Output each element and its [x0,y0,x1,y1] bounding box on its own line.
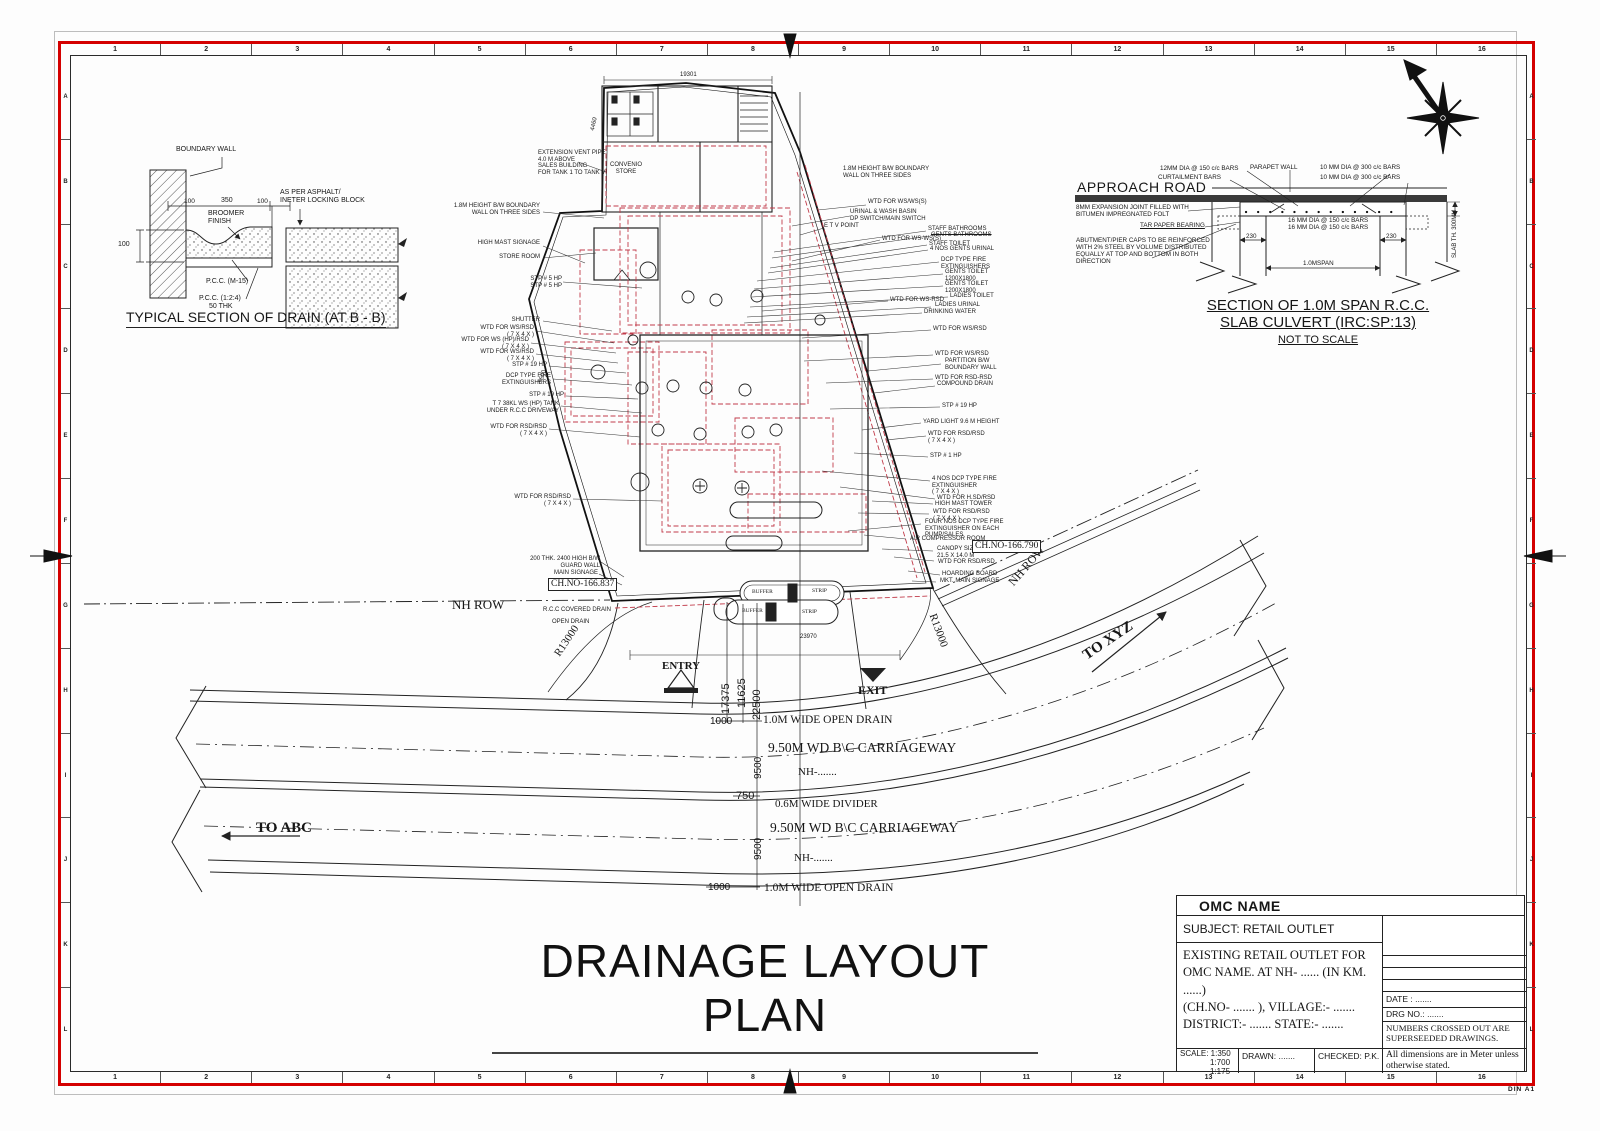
dimension-text: 9500 [753,757,764,779]
road-label: STRIP [812,588,827,594]
plan-callout-label: WTD FOR WS/RSD [933,326,987,333]
company-name: OMC NAME [1177,896,1524,916]
detail-label: 350 [221,197,233,205]
drg-no-cell: DRG NO.: ....... [1383,1008,1526,1022]
detail-label: 8MM EXPANSION JOINT FILLED WITH BITUMEN … [1076,204,1189,218]
plan-callout-label: 200 THK. 2400 HIGH B/W GUARD WALL [530,556,600,569]
plan-callout-label: 1.8M HEIGHT B/W BOUNDARY WALL ON THREE S… [843,166,929,179]
dimension-text: 1000 [710,716,732,727]
subject-row: SUBJECT: RETAIL OUTLET [1177,916,1383,943]
detail-label: 100 [184,198,195,205]
scale-cell: SCALE: 1:350 1:700 1:175 [1177,1049,1239,1073]
approach-road-label: APPROACH ROAD [1077,179,1206,195]
plan-callout-label: HIGH MAST SIGNAGE [478,240,540,247]
road-label: EXIT [858,684,887,697]
road-label: TO ABC [256,820,312,837]
plan-callout-label: STP # 5 HP [530,283,562,290]
detail-label: 16 MM DIA @ 150 c/c BARS [1288,224,1368,231]
date-cell: DATE : ....... [1383,992,1526,1008]
detail-label: SLAB TH. 300MM [1452,210,1459,258]
empty-row [1383,943,1526,956]
plan-callout-label: YARD LIGHT 9.6 M HEIGHT [923,419,999,426]
road-label: BUFFER [752,589,773,595]
detail-label: 10 MM DIA @ 300 c/c BARS [1320,164,1400,171]
plan-callout-label: URINAL & WASH BASIN DP SWITCH/MAIN SWITC… [850,209,926,222]
plan-callout-label: WTD FOR RSD/RSD ( 7 X 4 X ) [514,494,571,507]
plan-callout-label: WTD FOR WS/RSD ( 7 X 4 X ) [480,349,534,362]
plan-callout-label: COMPOUND DRAIN [937,381,993,388]
north-compass-icon [1404,60,1479,154]
plan-callout-label: MKT. MAIN SIGNAGE [940,578,999,585]
road-label: 9.50M WD B\C CARRIAGEWAY [768,740,956,755]
plan-callout-label: WTD FOR WS/RSD [935,351,989,358]
plan-callout-label: DRINKING WATER [924,309,976,316]
dimension-text: 9500 [753,838,764,860]
detail-label: CURTAILMENT BARS [1158,174,1221,181]
culvert-section-title-line1: SECTION OF 1.0M SPAN R.C.C. [1207,297,1429,314]
dimension-text: 19301 [680,72,697,79]
dimension-text: 11625 [736,678,748,708]
plan-callout-label: R.C.C COVERED DRAIN [543,607,611,614]
detail-label: TAR PAPER BEARING [1140,222,1205,229]
plan-callout-label: STP # 19 HP [942,403,977,410]
road-label: NH-....... [798,766,837,778]
plan-callout-label: STP # 19 HP [529,392,564,399]
plan-callout-label: HIGH MAST TOWER [935,501,992,508]
plan-callout-label: STP # 5 HP [530,276,562,283]
culvert-not-to-scale-note: NOT TO SCALE [1278,334,1358,346]
dimension-text: 22500 [751,689,763,720]
detail-label: 230 [1386,233,1397,240]
road-label: NH ROW [452,598,504,613]
plan-callout-label: WTD FOR RSD/RSD ( 7 X 4 X ) [928,431,985,444]
detail-label: 50 THK [209,303,233,311]
drain-section-title: TYPICAL SECTION OF DRAIN (AT B - B) [126,309,386,328]
dimension-text: 750 [736,790,754,802]
plan-callout-label: E T V POINT [824,223,859,230]
plan-callout-label: MAIN SIGNAGE [554,570,598,577]
dimension-text: 23970 [800,634,817,641]
detail-label: 100 [118,241,130,249]
empty-row [1383,956,1526,968]
project-description: EXISTING RETAIL OUTLET FOR OMC NAME. AT … [1177,943,1383,1049]
detail-label: 10 MM DIA @ 300 c/c BARS [1320,174,1400,181]
plan-callout-label: LADIES TOILET [950,293,994,300]
chainage-label: CH.NO-166.837 [548,578,617,591]
culvert-section-title-line2: SLAB CULVERT (IRC:SP:13) [1220,314,1416,331]
chainage-label: CH.NO-166.790 [972,540,1041,553]
plan-callout-label: WTD FOR WS/WS(S) [868,199,927,206]
superseded-note: NUMBERS CROSSED OUT ARE SUPERSEEDED DRAW… [1383,1022,1526,1049]
plan-callout-label: PARTITION B/W BOUNDARY WALL [945,358,997,371]
title-block: OMC NAME SUBJECT: RETAIL OUTLET EXISTING… [1176,895,1525,1072]
plan-callout-label: 1.8M HEIGHT B/W BOUNDARY WALL ON THREE S… [454,203,540,216]
detail-label: 100 [257,198,268,205]
detail-label: PARAPET WALL [1250,164,1297,171]
plan-callout-label: CONVENIO STORE [610,162,642,175]
plan-callout-label: T 7 38KL WS (HP) TANK UNDER R.C.C DRIVEW… [487,401,559,414]
empty-row [1383,968,1526,980]
plan-callout-label: STORE ROOM [499,254,540,261]
plan-callout-label: SHUTTER [512,317,540,324]
empty-row [1383,980,1526,992]
plan-callout-label: EXTENSION VENT PIPE 4.0 M ABOVE SALES BU… [538,150,606,177]
road-label: STRIP [802,609,817,615]
dimension-text: 1000 [708,882,730,893]
plan-callout-label: LADIES URINAL [935,302,980,309]
road-label: 9.50M WD B\C CARRIAGEWAY [770,820,958,835]
sales-building [594,76,772,335]
detail-label: 1.0MSPAN [1303,260,1334,267]
detail-label: P.C.C. (1:2:4) [199,295,241,303]
drawing-title: DRAINAGE LAYOUT PLAN [492,934,1038,1054]
leader-lines [531,162,948,585]
detail-label: P.C.C. (M-15) [206,278,248,286]
detail-label: BROOMER FINISH [208,210,244,226]
drain-section-detail [136,157,407,328]
drawn-cell: DRAWN: ....... [1239,1049,1315,1073]
plan-callout-label: WTD FOR RSD/RSD ( 7 X 4 X ) [490,424,547,437]
detail-label: 230 [1246,233,1257,240]
canopy-and-islands [640,335,868,624]
plan-callout-label: STP # 1 HP [930,453,962,460]
detail-label: ABUTMENT/PIER CAPS TO BE REINFORCED WITH… [1076,237,1210,265]
road-label: 1.0M WIDE OPEN DRAIN [763,714,892,727]
sheet-size-label: DIN A1 [1508,1086,1535,1093]
road-label: 1.0M WIDE OPEN DRAIN [764,882,893,895]
plan-callout-label: HOARDING BOARD [942,571,997,578]
scale-3: 1:175 [1210,1068,1238,1077]
detail-label: 16 MM DIA @ 150 c/c BARS [1288,217,1368,224]
plan-callout-label: STP # 19 HP [512,362,547,369]
plan-callout-label: 4 NOS DCP TYPE FIRE EXTINGUISHER ( 7 X 4… [932,476,997,496]
detail-label: BOUNDARY WALL [176,146,236,154]
plan-callout-label: 4 NOS GENTS URINAL [930,246,994,253]
detail-label: 12MM DIA @ 150 c/c BARS [1160,165,1238,172]
road-label: BUFFER [742,608,763,614]
dimensions-note: All dimensions are in Meter unless other… [1383,1049,1526,1073]
road-label: NH-....... [794,852,833,864]
plan-callout-label: WTD FOR RSD/RSD [938,559,995,566]
road-label: ENTRY [662,660,700,672]
scale-label: SCALE: 1:350 [1180,1049,1231,1058]
dimension-lines [706,92,800,906]
road-label: 0.6M WIDE DIVIDER [775,798,878,810]
dimension-text: 17375 [720,683,732,714]
checked-cell: CHECKED: P.K. [1315,1049,1383,1073]
drawing-sheet: { "sheet": { "size_label": "DIN A1" }, "… [0,0,1600,1131]
detail-label: AS PER ASPHALT/ INETER LOCKING BLOCK [280,189,365,205]
